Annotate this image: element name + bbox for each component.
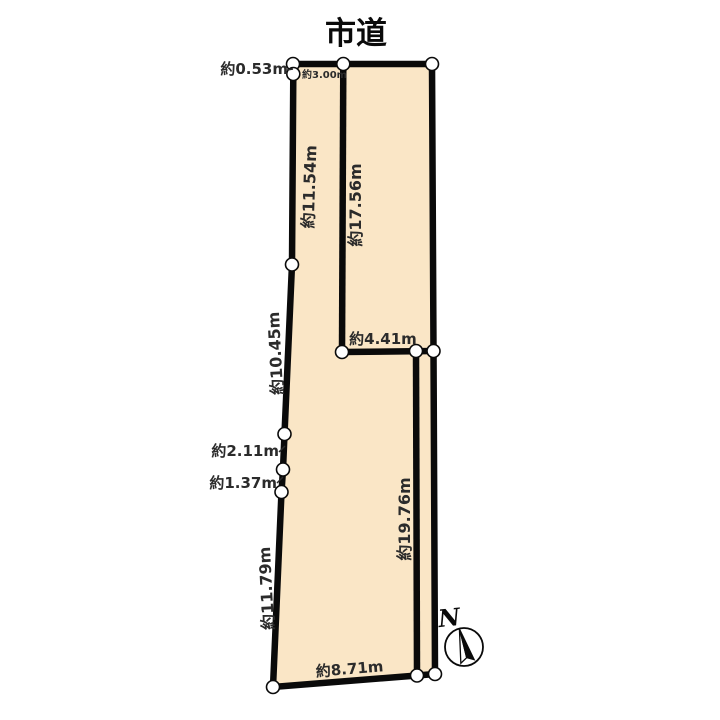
- label-10.45m: 約10.45m: [264, 311, 287, 395]
- label-1.37m: 約1.37m: [209, 474, 277, 492]
- label-19.76m: 約19.76m: [395, 477, 414, 560]
- site-plan: 市道 約0.53m 約3.00m 約2.11m 約1.37m 約4.41m 約8…: [0, 0, 720, 720]
- label-11.79m: 約11.79m: [255, 546, 278, 630]
- inner-line-vertical-right: [416, 351, 417, 676]
- label-11.54m: 約11.54m: [299, 145, 321, 229]
- vertex-marker: [277, 463, 290, 476]
- vertex-marker: [267, 681, 280, 694]
- label-4.41m: 約4.41m: [349, 330, 417, 348]
- vertex-marker: [426, 58, 439, 71]
- label-3.00m: 約3.00m: [302, 68, 347, 81]
- vertex-marker: [411, 669, 424, 682]
- label-17.56m: 約17.56m: [346, 163, 365, 246]
- vertex-marker: [427, 345, 440, 358]
- vertex-marker: [278, 428, 291, 441]
- vertex-marker: [337, 58, 350, 71]
- vertex-marker: [286, 258, 299, 271]
- vertex-marker: [336, 346, 349, 359]
- vertex-marker: [429, 668, 442, 681]
- inner-line-vertical-left: [342, 64, 343, 352]
- parcel-boundary: [273, 64, 435, 687]
- road-title: 市道: [325, 16, 387, 52]
- label-2.11m: 約2.11m: [211, 442, 279, 460]
- label-0.53m: 約0.53m: [220, 60, 288, 78]
- compass: N: [436, 602, 483, 666]
